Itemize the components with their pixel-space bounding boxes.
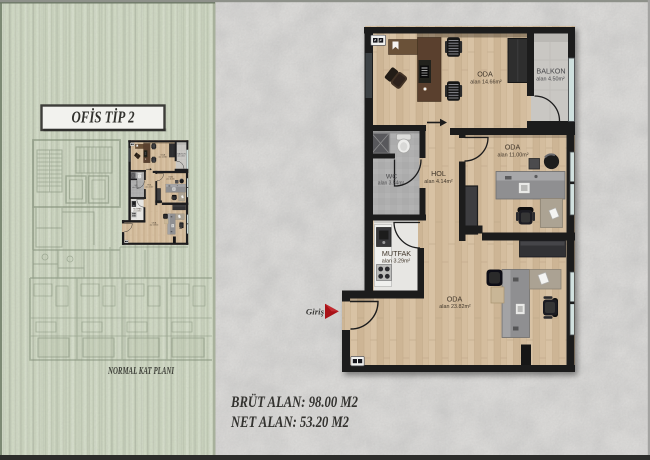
svg-text:NET ALAN: 53.20 M2: NET ALAN: 53.20 M2: [230, 414, 349, 431]
svg-text:alan 3.29m²: alan 3.29m²: [382, 259, 411, 265]
svg-text:alan 3.54m²: alan 3.54m²: [378, 181, 405, 187]
svg-text:alan 23.82m²: alan 23.82m²: [439, 304, 471, 310]
svg-text:MUTFAK: MUTFAK: [382, 249, 411, 258]
svg-text:BRÜT ALAN: 98.00 M2: BRÜT ALAN: 98.00 M2: [230, 394, 358, 411]
svg-text:alan 4.14m²: alan 4.14m²: [424, 179, 453, 185]
svg-text:WC: WC: [386, 174, 397, 181]
svg-text:alan 11.00m²: alan 11.00m²: [497, 153, 528, 159]
svg-text:HOL: HOL: [431, 169, 446, 178]
svg-text:Giriş: Giriş: [306, 307, 325, 317]
svg-text:ODA: ODA: [477, 70, 493, 79]
svg-text:alan 14.66m²: alan 14.66m²: [470, 80, 502, 86]
svg-text:ODA: ODA: [447, 295, 463, 304]
svg-text:OFİS TİP 2: OFİS TİP 2: [72, 108, 135, 127]
svg-text:ODA: ODA: [505, 143, 521, 152]
svg-text:BALKON: BALKON: [536, 67, 565, 76]
svg-text:alan 4.50m²: alan 4.50m²: [536, 77, 565, 83]
svg-text:NORMAL KAT PLANI: NORMAL KAT PLANI: [107, 366, 174, 377]
